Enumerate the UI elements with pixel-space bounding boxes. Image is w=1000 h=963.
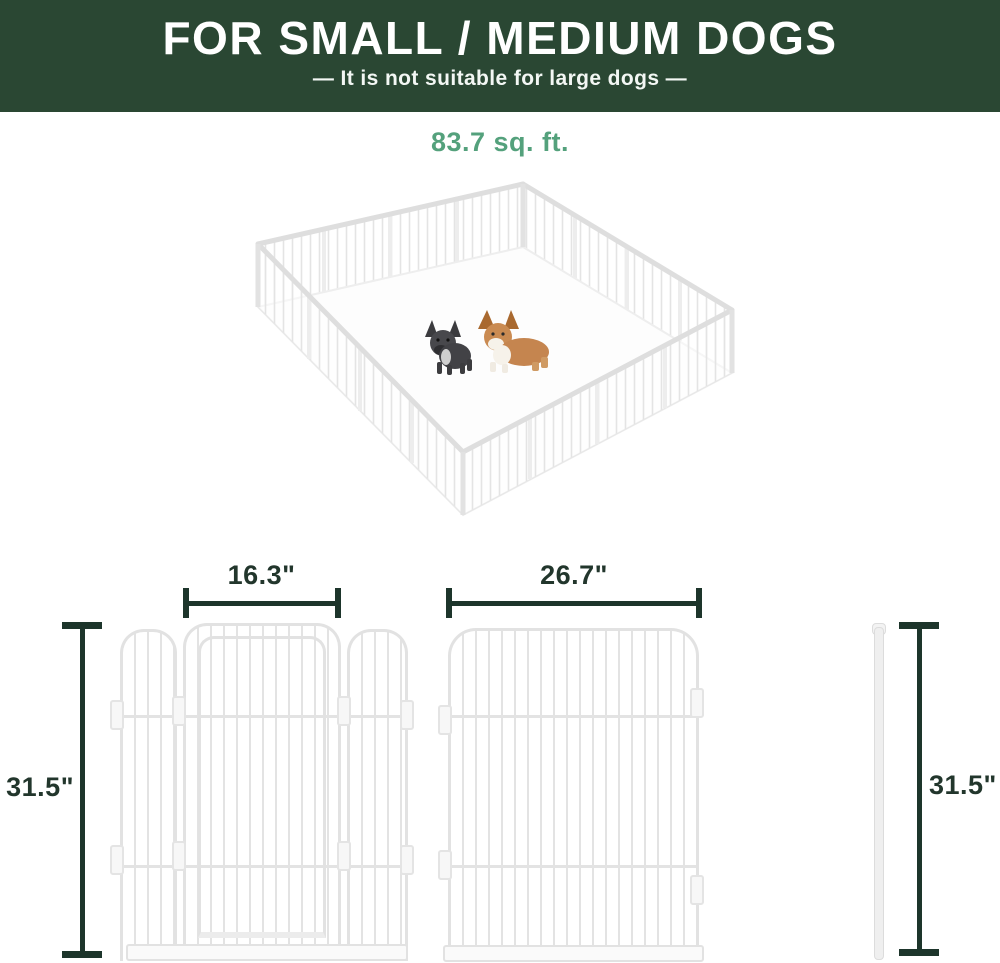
panel-connector-tab <box>110 845 124 875</box>
panel-connector-tab <box>172 696 186 726</box>
gate-panel <box>183 623 341 961</box>
panel-rail <box>123 715 174 718</box>
panel-connector-tab <box>400 845 414 875</box>
panel-rail <box>451 715 696 718</box>
large-panel-width-label: 26.7" <box>446 560 702 591</box>
panel-rail <box>350 865 405 868</box>
panel-connector-tab <box>438 705 452 735</box>
panel-connector-tab <box>172 841 186 871</box>
panel-rail <box>123 865 174 868</box>
large-panel-base-bar <box>443 945 704 962</box>
panel-connector-tab <box>110 700 124 730</box>
playpen-illustration <box>210 160 790 540</box>
area-label: 83.7 sq. ft. <box>0 127 1000 158</box>
panel-connector-tab <box>690 688 704 718</box>
small-panel-right <box>347 629 408 961</box>
gate-door <box>198 636 326 938</box>
gate-base-bar <box>126 944 408 961</box>
panel-connector-tab <box>690 875 704 905</box>
panel-connector-tab <box>400 700 414 730</box>
panel-rail <box>451 865 696 868</box>
panel-connector-tab <box>337 696 351 726</box>
page-subtitle: — It is not suitable for large dogs — <box>0 67 1000 91</box>
product-infographic: FOR SMALL / MEDIUM DOGS — It is not suit… <box>0 0 1000 963</box>
gate-height-label: 31.5" <box>4 772 74 803</box>
panel-connector-tab <box>438 850 452 880</box>
page-title: FOR SMALL / MEDIUM DOGS <box>0 0 1000 62</box>
panel-rail <box>350 715 405 718</box>
gate-width-label: 16.3" <box>183 560 340 591</box>
header-banner: FOR SMALL / MEDIUM DOGS — It is not suit… <box>0 0 1000 112</box>
rod-height-label: 31.5" <box>929 770 999 801</box>
small-panel-left <box>120 629 177 961</box>
panel-connector-tab <box>337 841 351 871</box>
large-panel <box>448 628 699 961</box>
ground-rod <box>874 627 884 960</box>
playpen-svg <box>210 160 790 540</box>
